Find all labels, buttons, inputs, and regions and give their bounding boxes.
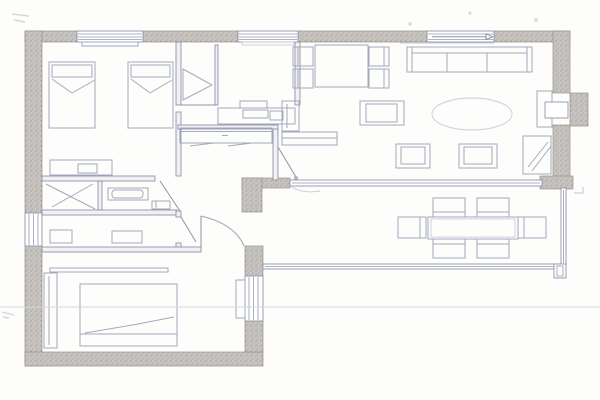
iwall-bath-mid: [98, 181, 102, 211]
kitchen-sink: [243, 110, 268, 118]
smudge-top-left-2: [14, 20, 25, 22]
kitchen-peninsula: [282, 101, 299, 131]
wall-bottom: [25, 352, 263, 366]
shower-diag-2: [52, 184, 93, 207]
iwall-closet: [215, 45, 218, 105]
bedroom3-wardrobe: [44, 273, 57, 348]
wall-right-upper: [553, 31, 570, 93]
bed-single-1-fold-a: [52, 79, 72, 93]
window-kitchen-sill: [242, 42, 294, 45]
bed-double-fold: [85, 317, 174, 333]
iwall-bath-bottom: [42, 210, 177, 215]
dresser-bedroom1-inner: [78, 164, 97, 173]
pier-bedroom3: [245, 246, 263, 276]
dining-table-inner: [431, 219, 515, 237]
bed-single-2-fold-b: [150, 80, 172, 93]
floor-plan-svg: [0, 0, 600, 400]
wall-top-3: [298, 31, 427, 42]
armchair-mid-inner: [366, 104, 397, 122]
speck-1: [409, 23, 411, 25]
bed-double-foot: [80, 334, 177, 346]
wardrobe-triangle: [183, 69, 212, 100]
window-bedroom3-sill: [236, 280, 245, 318]
iwall-hall-bottom: [42, 247, 201, 252]
bed-single-2-fold-a: [131, 79, 150, 93]
dining-chair-bottom-2: [477, 239, 509, 258]
rug-oval: [432, 98, 512, 130]
glazed-divider-curve: [292, 187, 320, 192]
bed-double: [80, 284, 177, 346]
iwall-corridor-right: [273, 128, 278, 180]
wall-bedroom3-right-lower: [245, 321, 263, 352]
dining-table: [428, 217, 518, 239]
smudge-bottom-left-2: [3, 317, 9, 318]
door-leaf-corridor: [278, 147, 296, 177]
dining-chair-top-1: [433, 198, 465, 217]
fireplace-firebox: [545, 102, 568, 118]
iwall-bedroom1-right-upper: [176, 42, 181, 105]
door-leaf-wc: [181, 217, 196, 242]
chair-right-1: [369, 47, 389, 66]
bed-single-2-pillow: [131, 65, 170, 77]
door-hinge-dot: [295, 177, 298, 180]
bath-sink: [152, 201, 170, 209]
wall-left-lower: [25, 246, 42, 366]
square-table: [315, 45, 368, 87]
bathtub-inner: [112, 190, 143, 198]
speck-2: [535, 19, 537, 21]
smudge-top-left-1: [12, 14, 29, 16]
bed-single-1-fold-b: [72, 80, 95, 93]
kitchen-hob: [270, 111, 283, 120]
wall-top-2: [143, 31, 238, 42]
window-bedroom3: [245, 276, 263, 321]
door-arc-bedroom3: [201, 216, 244, 246]
wall-corner-dining: [540, 176, 573, 189]
bed-single-1: [49, 62, 95, 128]
window-kitchen: [238, 31, 298, 42]
pier-hall-vertical: [242, 178, 262, 212]
armchair-1-inner: [401, 147, 425, 164]
wall-left-upper: [25, 31, 42, 213]
iwall-bedroom1-right-lower: [176, 112, 181, 176]
window-bedroom1: [77, 31, 143, 42]
sofa: [407, 47, 532, 72]
wall-right-mid: [553, 125, 570, 178]
bedroom3-shelf: [50, 268, 168, 272]
wc-fixture-2: [112, 231, 142, 243]
dining-chair-top-2: [477, 198, 509, 217]
smudge-bottom-left-1: [2, 312, 14, 315]
iwall-bath-top: [42, 176, 155, 181]
dining-chair-bottom-1: [433, 239, 465, 258]
wc-fixture-1: [50, 230, 72, 243]
dining-chair-right: [518, 217, 546, 238]
floor-plan-page: [0, 0, 600, 400]
bed-single-2: [128, 62, 173, 128]
chair-right-2: [369, 69, 389, 88]
floor-plan-shapes: [0, 12, 600, 366]
speck-3: [469, 12, 471, 14]
dining-chair-left: [398, 217, 426, 238]
window-bedroom1-sill: [82, 42, 138, 46]
fireplace-chimney: [570, 93, 588, 126]
iwall-hall-left-a: [176, 211, 181, 217]
bed-single-1-pillow: [52, 65, 92, 77]
armchair-2-inner: [464, 147, 492, 164]
kitchen-top-unit: [240, 101, 267, 108]
